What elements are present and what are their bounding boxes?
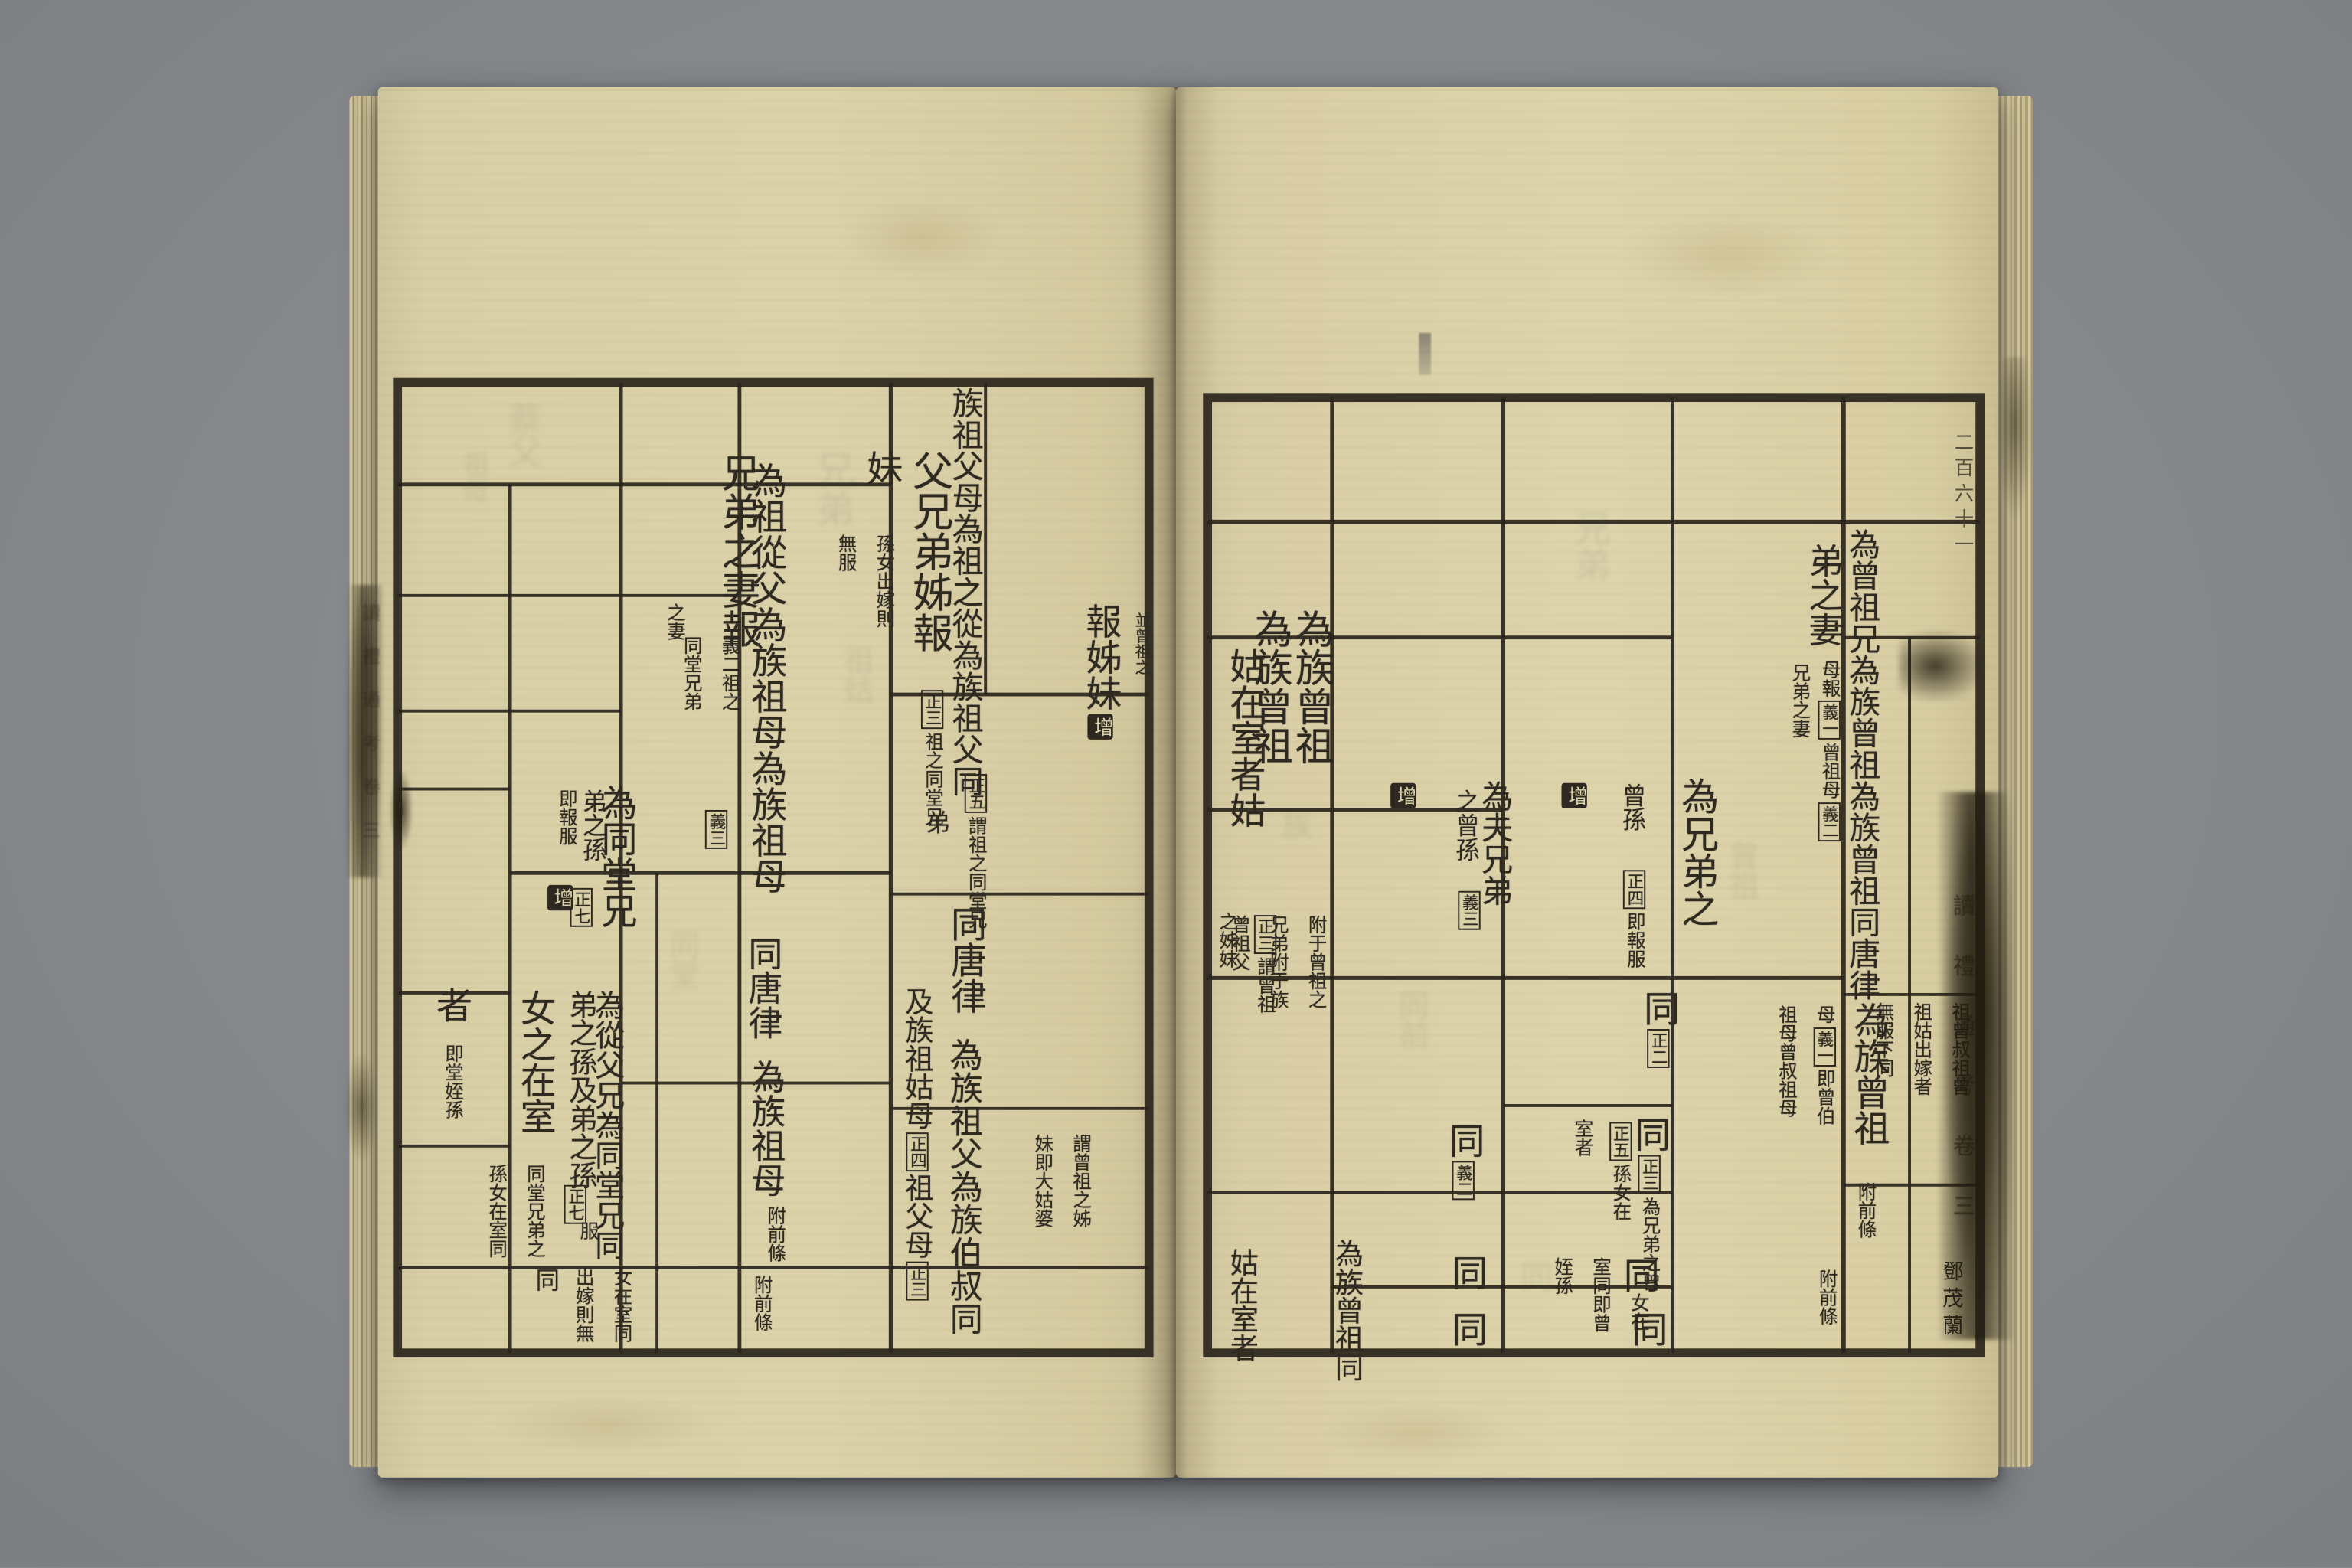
bleedthrough-text: 祖母 <box>459 450 488 505</box>
photo-background: 蔡父兄弟祖姑同堂祖母 兄弟曾祖同前同族 族祖父母為祖之從為族祖父同正五謂祖之同堂… <box>0 0 2352 1567</box>
glyph-run: 正三 <box>922 690 944 729</box>
glyph-run: 增 <box>1088 714 1113 740</box>
glyph-run: 族祖父母為祖之從為族祖父同 <box>949 387 985 796</box>
glyph-run: 即報服 <box>556 789 578 845</box>
text-block: 妹 <box>861 450 900 486</box>
glyph-run: 祖母 <box>458 450 489 505</box>
glyph-run: 義二祖之同堂兄弟 <box>681 636 741 711</box>
spine-title-left: 讀禮通考卷三 <box>358 603 384 864</box>
text-block: 正三謂曾祖之姊妹 <box>1220 912 1282 1026</box>
text-block: 為兄弟之 <box>1677 777 1717 927</box>
text-block: 附前條 <box>741 1275 779 1331</box>
bleedthrough-text: 同前 <box>1395 990 1427 1050</box>
glyph-run: 同 <box>1637 990 1679 1026</box>
glyph-run: 同唐律 <box>944 906 986 1014</box>
glyph-run: 妹 <box>860 450 902 486</box>
text-block: 義二祖之同堂兄弟 <box>687 636 746 717</box>
glyph-run: 同前 <box>1393 990 1429 1050</box>
text-block: 者 <box>430 987 469 1023</box>
text-block: 義三 <box>1449 888 1488 933</box>
glyph-run: 為夫兄弟 <box>1478 780 1514 906</box>
glyph-run: 同 <box>531 1268 560 1292</box>
glyph-run: 正七 <box>565 1185 587 1224</box>
glyph-run: 同 <box>1445 1254 1488 1290</box>
glyph-run: 兄弟 <box>1568 510 1610 582</box>
glyph-run: 義二 <box>1452 1161 1475 1200</box>
glyph-run: 族 <box>1277 810 1313 840</box>
bleedthrough-text: 兄弟 <box>810 450 851 528</box>
glyph-run: 弟之孫及弟之孫 <box>565 990 598 1190</box>
glyph-run: 為兄弟之 <box>1676 777 1720 927</box>
right-page-edge-stack <box>1997 96 2033 1467</box>
text-block: 為族祖母 <box>746 1059 782 1197</box>
glyph-run: 孫女出嫁則無服 <box>835 534 895 627</box>
text-block: 即堂姪孫 <box>432 1044 470 1119</box>
text-block: 正五謂祖之同堂兄 <box>955 771 994 929</box>
glyph-run: 姑在室者姑 <box>1223 648 1266 828</box>
glyph-run: 祖姑 <box>839 645 875 704</box>
text-block: 附前條 <box>1845 1182 1883 1238</box>
text-block: 之妻 <box>654 603 692 641</box>
glyph-run: 正五 <box>965 774 988 813</box>
text-block: 增 <box>540 882 578 913</box>
text-block: 兄弟之妻 <box>1779 663 1818 738</box>
glyph-run: 正四 <box>906 1132 929 1171</box>
text-block: 並曾祖之 <box>1122 612 1160 675</box>
glyph-run: 謂曾祖之姊妹即大姑婆 <box>1031 1134 1092 1227</box>
carver-name: 鄧茂蘭 <box>1936 1260 1966 1341</box>
glyph-run: 正三 <box>1638 1155 1661 1194</box>
text-block: 父兄弟姊報 <box>906 450 949 652</box>
text-block: 義三 <box>696 807 734 852</box>
glyph-run: 為族祖母 <box>744 1059 783 1197</box>
glyph-run: 同 <box>1617 1257 1659 1293</box>
glyph-run: 兄弟之妻報 <box>715 453 760 648</box>
text-block: 同 <box>1446 1254 1485 1290</box>
text-block: 同 <box>1626 1311 1664 1347</box>
glyph-run: 女之在室 <box>514 990 556 1134</box>
text-block: 弟之孫及弟之孫 <box>561 990 599 1190</box>
text-block: 為族曾祖同 <box>1332 1239 1362 1381</box>
glyph-run: 兄弟之妻 <box>1788 663 1811 738</box>
glyph-run: 附前條 <box>1854 1182 1877 1238</box>
glyph-run: 正三 <box>1254 915 1276 954</box>
text-block: 母義一即曾伯祖母曾叔祖母 <box>1779 1005 1842 1140</box>
bleedthrough-text: 族 <box>1278 810 1310 840</box>
spine-title-right: 讀禮通考卷三 <box>1949 894 1980 1254</box>
glyph-run: 增 <box>1562 783 1587 808</box>
text-block: 女在室同出嫁則無同 <box>579 1268 639 1343</box>
glyph-run: 曾孫 <box>1618 783 1646 831</box>
bleedthrough-text: 同堂 <box>666 930 698 990</box>
text-block: 祖父母正三 <box>897 1173 936 1303</box>
glyph-run: 正二 <box>1648 1029 1670 1068</box>
text-block: 及族祖姑母正四 <box>897 987 936 1174</box>
text-block: 為夫兄弟 <box>1479 780 1513 906</box>
text-block: 為曾祖兄為族曾祖為族曾祖同唐律 <box>1847 528 1880 1001</box>
glyph-run: 同堂 <box>665 930 701 990</box>
text-block: 女之在室 <box>514 990 553 1134</box>
glyph-run: 附前條 <box>764 1206 786 1262</box>
text-block: 孫女出嫁則無服 <box>844 534 901 632</box>
glyph-run: 同堂兄弟之孫女在室同 <box>485 1164 546 1257</box>
glyph-run: 為族曾祖同 <box>1331 1239 1364 1381</box>
glyph-run: 正四 <box>1624 870 1646 909</box>
text-block: 正五孫女在室者 <box>1584 1119 1638 1233</box>
glyph-run: 女在室同出嫁則無 <box>573 1268 633 1343</box>
glyph-run: 母 <box>1814 1005 1836 1024</box>
text-block: 為族曾祖為族曾祖 <box>1268 609 1331 774</box>
glyph-run: 母報 <box>1818 660 1841 697</box>
glyph-run: 弟 <box>922 810 950 834</box>
glyph-run: 義三 <box>706 810 728 849</box>
text-block: 正三祖之同堂兄 <box>912 687 950 825</box>
text-block: 族祖父母為祖之從為族祖父同 <box>949 387 983 796</box>
text-block: 附前條 <box>1806 1269 1844 1325</box>
glyph-run: 正三 <box>906 1262 929 1301</box>
glyph-run: 之妻 <box>664 603 686 641</box>
text-block: 服 <box>567 1221 606 1240</box>
glyph-run: 者 <box>430 987 472 1023</box>
glyph-run: 及族祖姑母 <box>900 987 933 1129</box>
text-block: 正四即報服 <box>1614 867 1652 968</box>
folio-number: 二百六十一 <box>1947 432 1975 560</box>
glyph-run: 附前條 <box>1815 1269 1837 1325</box>
glyph-run: 父兄弟姊報 <box>906 450 952 652</box>
glyph-run: 為曾祖兄為族曾祖為族曾祖同唐律 <box>1845 528 1881 1001</box>
text-block: 同 <box>1446 1311 1485 1347</box>
glyph-run: 義一 <box>1818 701 1841 740</box>
text-block: 弟 <box>915 810 953 834</box>
bleedthrough-text: 蔡父 <box>504 402 539 468</box>
text-block: 謂曾祖之姊妹即大姑婆 <box>1026 1134 1098 1239</box>
glyph-run: 即報服 <box>1624 912 1646 968</box>
glyph-run: 附前條 <box>750 1275 773 1331</box>
text-block: 同唐律 <box>945 906 983 1014</box>
glyph-run: 正五 <box>1609 1122 1632 1161</box>
text-block: 增 <box>1383 780 1421 812</box>
glyph-run: 祖父母 <box>900 1173 933 1259</box>
text-block: 同正二 <box>1638 990 1676 1071</box>
text-block: 報姊妹增 <box>1080 603 1119 743</box>
text-block: 姑在室者 <box>1227 1248 1257 1362</box>
text-block: 姑在室者姑 <box>1224 648 1263 828</box>
glyph-run: 報姊妹 <box>1080 603 1122 711</box>
glyph-run: 增 <box>548 885 573 910</box>
glyph-run: 義一 <box>1814 1027 1836 1066</box>
glyph-run: 曾祖 <box>1723 840 1759 900</box>
glyph-run: 同唐律 <box>742 936 781 1040</box>
glyph-run: 服 <box>577 1221 599 1240</box>
text-block: 即報服 <box>546 789 584 845</box>
photo-scaler: 蔡父兄弟祖姑同堂祖母 兄弟曾祖同前同族 族祖父母為祖之從為族祖父同正五謂祖之同堂… <box>0 0 2352 1567</box>
glyph-run: 義二 <box>1818 802 1841 841</box>
text-block: 增 <box>1554 780 1592 812</box>
glyph-run: 之曾孫 <box>1451 789 1479 861</box>
text-block: 同堂兄弟之孫女在室同 <box>492 1164 552 1263</box>
text-block: 同義二 <box>1443 1122 1481 1203</box>
text-block: 曾孫 <box>1611 783 1649 831</box>
glyph-run: 為族祖父為族伯叔同 <box>944 1038 982 1335</box>
glyph-run: 同 <box>1442 1122 1485 1158</box>
glyph-run: 並曾祖之 <box>1133 612 1151 675</box>
glyph-run: 即堂姪孫 <box>442 1044 464 1119</box>
text-block: 為族祖父為族伯叔同 <box>945 1038 980 1335</box>
text-block: 兄弟之妻報 <box>716 453 757 648</box>
text-block: 弟之妻 <box>1803 543 1840 646</box>
glyph-run: 同 <box>1445 1311 1488 1347</box>
glyph-run: 蔡父 <box>503 402 541 468</box>
glyph-run: 曾祖母 <box>1818 743 1841 799</box>
bleedthrough-text: 兄弟 <box>1569 510 1607 582</box>
bleedthrough-text: 祖姑 <box>840 645 872 704</box>
glyph-run: 增 <box>1391 783 1416 808</box>
glyph-run: 義三 <box>1459 891 1481 930</box>
bleedthrough-text: 曾祖 <box>1725 840 1757 900</box>
glyph-run: 弟之妻 <box>1802 543 1841 646</box>
glyph-run: 兄弟 <box>809 450 854 528</box>
text-block: 同唐律 <box>743 936 779 1040</box>
text-block: 之曾孫 <box>1445 789 1483 861</box>
text-block: 附前條 <box>754 1206 792 1262</box>
glyph-run: 同 <box>1625 1311 1668 1347</box>
glyph-run: 姑在室者 <box>1226 1248 1259 1362</box>
